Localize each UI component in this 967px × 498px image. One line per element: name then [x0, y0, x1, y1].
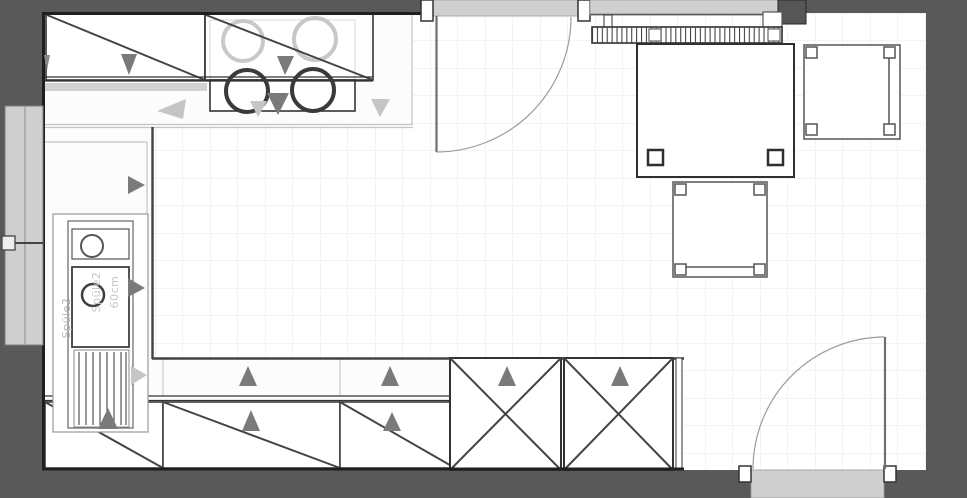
wall-cabinet-bottom-3[interactable] — [340, 402, 455, 468]
window-handle — [2, 236, 15, 250]
table-leg — [768, 150, 783, 165]
door-jamb — [578, 0, 590, 21]
door-lintel — [433, 0, 578, 16]
window-top[interactable] — [590, 0, 780, 15]
window-left[interactable] — [2, 106, 43, 345]
sink-cabinet-label: Spüle2 — [60, 298, 73, 339]
floor-plan-canvas: Spüle2 Spüle2 60cm — [0, 0, 967, 498]
sink-item-label: Spüle2 — [90, 272, 103, 313]
table-leg — [648, 150, 663, 165]
drainer-ribs — [74, 350, 129, 427]
faucet — [72, 229, 129, 259]
wall-cabinet-top-left[interactable] — [46, 14, 205, 80]
radiator-bracket — [763, 12, 782, 28]
sink-unit[interactable]: Spüle2 Spüle2 60cm — [53, 214, 148, 432]
door-threshold — [751, 470, 884, 498]
chair-bottom[interactable] — [673, 182, 767, 277]
backsplash-band — [45, 83, 207, 91]
radiator-bracket — [604, 15, 612, 28]
table-leg — [649, 29, 661, 41]
door-jamb — [421, 0, 433, 21]
dining-table[interactable] — [637, 44, 794, 177]
door-jamb — [739, 466, 751, 482]
wall-cabinet-top-right[interactable] — [205, 14, 373, 80]
table-leg — [768, 29, 780, 41]
sink-width-label: 60cm — [108, 276, 121, 309]
chair-right[interactable] — [804, 45, 900, 139]
side-panel — [676, 358, 682, 469]
